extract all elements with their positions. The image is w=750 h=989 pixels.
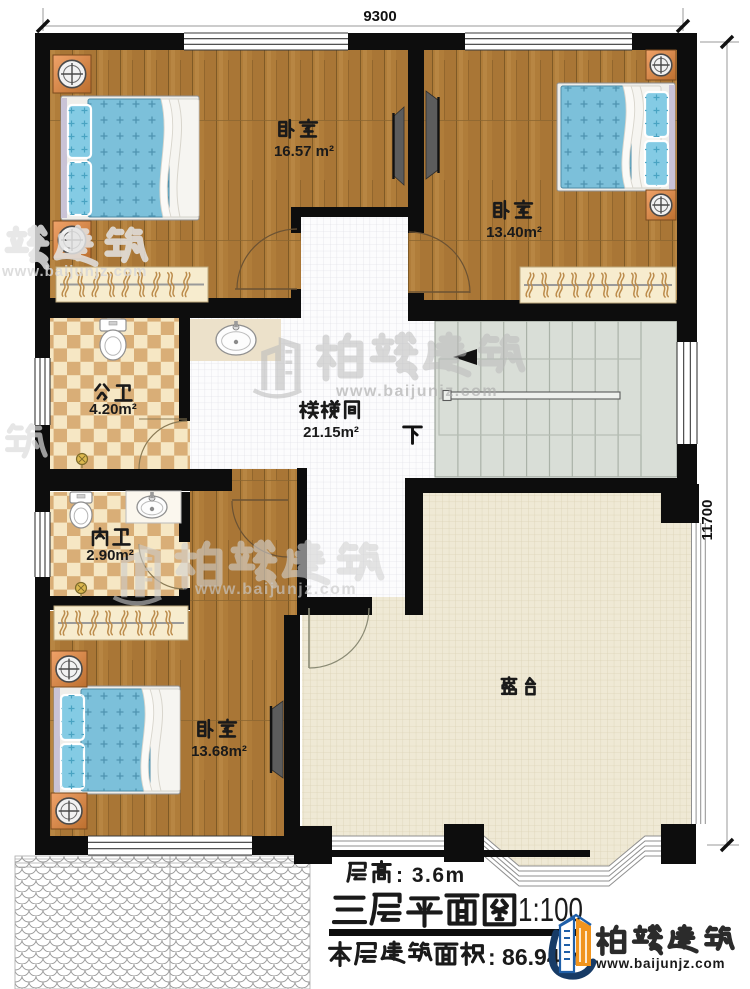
svg-text:16.57 m²: 16.57 m² — [274, 143, 334, 160]
svg-text:www.baijunjz.com: www.baijunjz.com — [595, 956, 725, 971]
svg-text:4.20m²: 4.20m² — [89, 401, 137, 418]
svg-text:13.40m²: 13.40m² — [486, 224, 542, 241]
svg-text:9300: 9300 — [363, 8, 396, 25]
svg-text:www.baijunjz.com: www.baijunjz.com — [194, 581, 357, 598]
svg-text:13.68m²: 13.68m² — [191, 743, 247, 760]
svg-text:11700: 11700 — [699, 500, 716, 541]
svg-text:www.baijunjz.com: www.baijunjz.com — [1, 263, 147, 280]
svg-text:21.15m²: 21.15m² — [303, 424, 359, 441]
svg-text:: 3.6m: : 3.6m — [396, 864, 466, 887]
svg-text:2.90m²: 2.90m² — [86, 547, 134, 564]
svg-text:www.baijunjz.com: www.baijunjz.com — [335, 383, 498, 400]
